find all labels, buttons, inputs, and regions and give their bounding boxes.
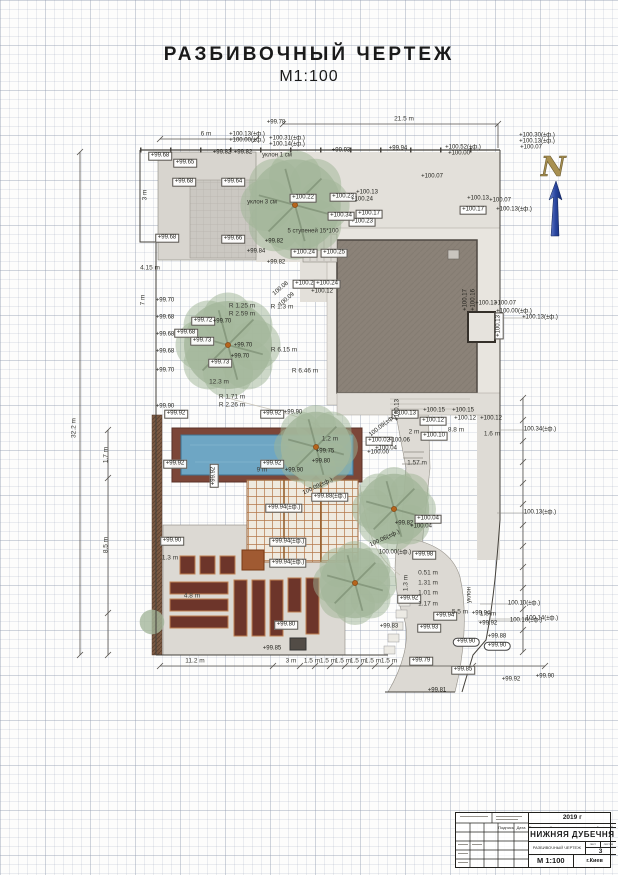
- north-arrow: N: [540, 152, 567, 236]
- annex-structure: [468, 312, 495, 342]
- north-letter: N: [540, 152, 567, 183]
- building-roof: [337, 240, 477, 393]
- raised-bed: [170, 616, 228, 628]
- compost-box: [242, 550, 264, 570]
- title-block-city: г.Киев: [574, 855, 616, 867]
- north-arrow-icon: [549, 181, 562, 236]
- raised-bed: [220, 556, 235, 574]
- shed: [290, 638, 306, 650]
- raised-bed: [252, 580, 265, 636]
- tree: [274, 405, 358, 489]
- drawing-sheet: РАЗБИВОЧНЫЙ ЧЕРТЕЖ М1:100: [0, 0, 618, 875]
- site-plan: N: [0, 0, 618, 875]
- tree: [352, 467, 436, 551]
- title-block-grid: Подпись Дата: [456, 813, 529, 867]
- raised-bed: [234, 580, 247, 636]
- raised-bed: [270, 580, 283, 636]
- tree: [240, 150, 349, 259]
- sheet-number: 3: [586, 848, 616, 855]
- title-block-scale-row: М 1:100 г.Киев: [529, 855, 616, 867]
- raised-bed: [180, 556, 195, 574]
- sheet-label: лист: [586, 842, 602, 847]
- title-block-drawing-row: РАЗБИВОЧНЫЙ ЧЕРТЕЖ лист листов 3: [529, 842, 616, 855]
- raised-bed: [170, 599, 228, 611]
- title-block: Подпись Дата 2019 г Благоустройство терр…: [455, 812, 611, 868]
- tree: [176, 293, 281, 398]
- raised-bed: [200, 556, 215, 574]
- title-block-scale: М 1:100: [529, 855, 574, 867]
- raised-bed: [288, 578, 301, 612]
- sheets-label: листов: [601, 842, 616, 847]
- tree: [313, 541, 397, 625]
- title-block-sheets: лист листов 3: [586, 842, 616, 854]
- title-block-drawing-title: РАЗБИВОЧНЫЙ ЧЕРТЕЖ: [529, 842, 586, 854]
- date-header: Дата: [517, 825, 527, 830]
- roof-vent: [448, 250, 459, 259]
- tree: [140, 610, 165, 635]
- signature-header: Подпись: [498, 825, 514, 830]
- raised-bed: [170, 582, 228, 594]
- title-block-main: 2019 г Благоустройство территории частно…: [529, 813, 616, 867]
- title-block-year: 2019 г: [529, 813, 616, 824]
- side-path: [477, 405, 500, 560]
- title-block-object: НИЖНЯЯ ДУБЕЧНЯ: [529, 828, 616, 842]
